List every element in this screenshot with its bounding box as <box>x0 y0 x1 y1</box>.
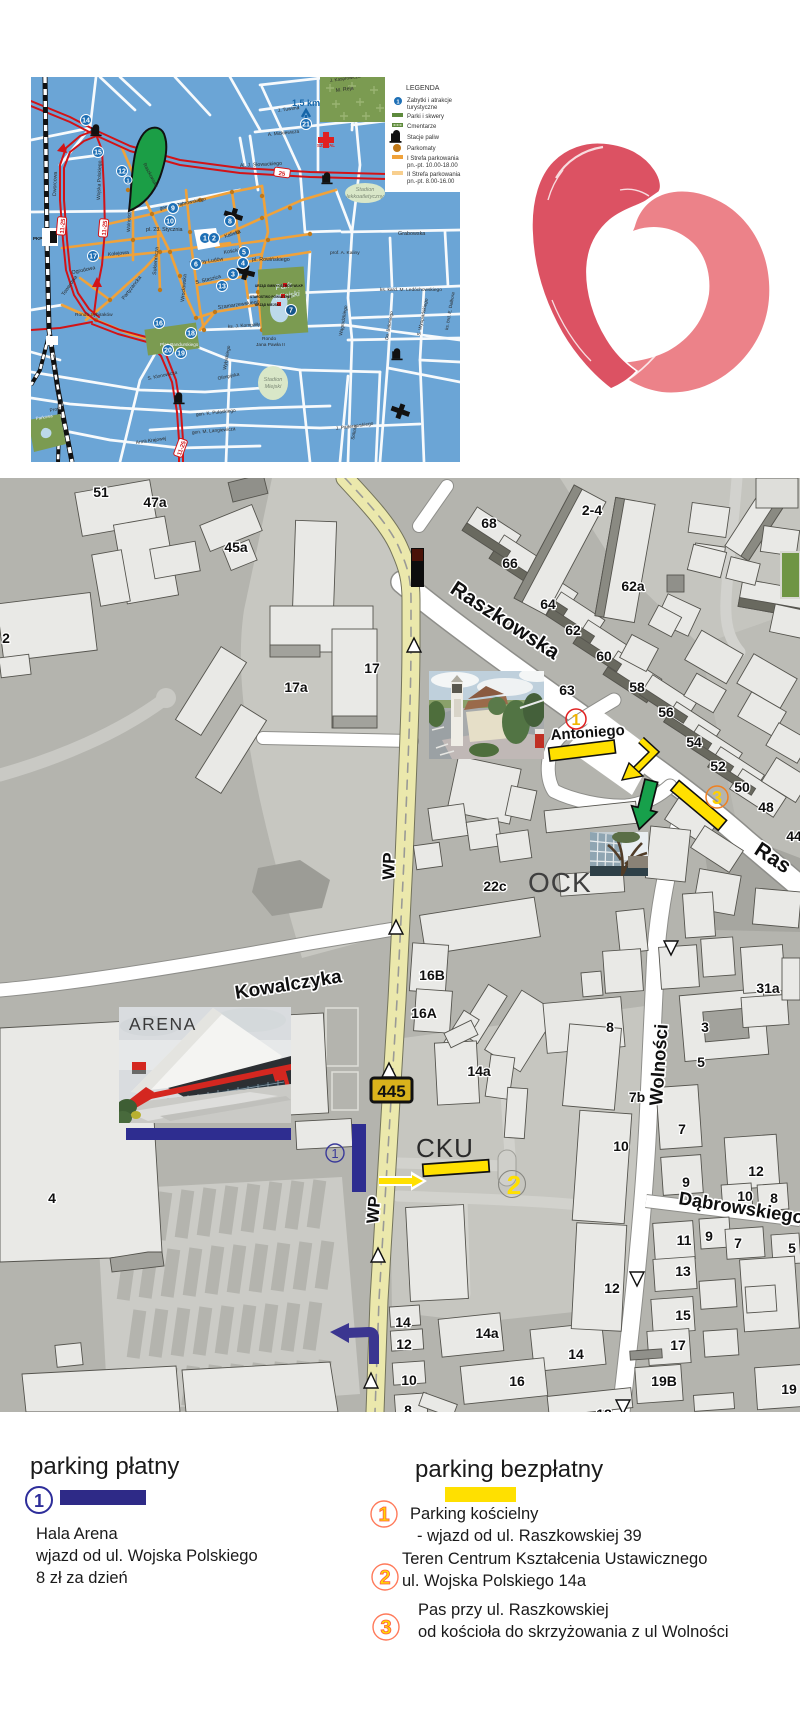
svg-text:11: 11 <box>677 1232 692 1248</box>
svg-text:10: 10 <box>613 1138 629 1154</box>
svg-text:8: 8 <box>770 1190 778 1206</box>
svg-text:18: 18 <box>596 1406 612 1412</box>
svg-text:Stadion: Stadion <box>264 377 283 383</box>
svg-text:52: 52 <box>710 758 726 774</box>
svg-text:od kościoła do skrzyżowania z: od kościoła do skrzyżowania z ul Wolnośc… <box>418 1623 729 1641</box>
svg-text:15: 15 <box>675 1307 691 1323</box>
svg-text:58: 58 <box>629 679 645 695</box>
svg-text:Pas przy ul. Raszkowskiej: Pas przy ul. Raszkowskiej <box>418 1601 609 1619</box>
svg-text:62: 62 <box>565 622 581 638</box>
svg-text:14a: 14a <box>467 1063 491 1079</box>
svg-text:2: 2 <box>507 1170 521 1200</box>
svg-text:1: 1 <box>203 236 207 243</box>
svg-text:1: 1 <box>572 712 581 729</box>
svg-text:II Strefa parkowania: II Strefa parkowania <box>407 172 461 178</box>
svg-text:16A: 16A <box>411 1005 437 1021</box>
svg-text:pl. Rowińskiego: pl. Rowińskiego <box>252 257 290 263</box>
svg-text:7: 7 <box>734 1235 742 1251</box>
svg-text:19: 19 <box>781 1381 797 1397</box>
svg-text:14: 14 <box>568 1346 584 1362</box>
svg-text:1: 1 <box>396 100 399 106</box>
svg-text:3: 3 <box>701 1019 709 1035</box>
svg-text:44: 44 <box>786 828 800 844</box>
svg-text:Dworcowa: Dworcowa <box>52 172 59 197</box>
svg-text:7: 7 <box>289 308 293 315</box>
svg-text:5: 5 <box>788 1240 796 1256</box>
svg-text:WP: WP <box>379 852 399 880</box>
svg-text:URZĄD GMINY OSTRÓW WLKP.: URZĄD GMINY OSTRÓW WLKP. <box>255 283 304 288</box>
svg-text:14: 14 <box>395 1314 411 1330</box>
svg-text:9: 9 <box>705 1228 713 1244</box>
svg-text:STAROSTWO POWIATOWE: STAROSTWO POWIATOWE <box>250 295 291 299</box>
svg-text:16B: 16B <box>419 967 445 983</box>
svg-text:Parking kościelny: Parking kościelny <box>410 1505 539 1523</box>
svg-text:3: 3 <box>231 272 235 279</box>
svg-text:Teren Centrum Kształcenia Usta: Teren Centrum Kształcenia Ustawicznego <box>402 1550 707 1568</box>
svg-text:16: 16 <box>509 1373 525 1389</box>
svg-text:5: 5 <box>697 1054 705 1070</box>
svg-text:prof. A. Kaliny: prof. A. Kaliny <box>330 250 360 256</box>
svg-text:Jana Pawła II: Jana Pawła II <box>256 342 285 348</box>
svg-text:Stacje paliw: Stacje paliw <box>407 135 440 141</box>
svg-text:12: 12 <box>396 1336 412 1352</box>
svg-text:17a: 17a <box>284 679 308 695</box>
svg-text:4: 4 <box>241 261 245 268</box>
svg-text:OCK: OCK <box>528 867 592 898</box>
svg-text:8 zł za dzień: 8 zł za dzień <box>36 1569 128 1587</box>
svg-text:51: 51 <box>93 484 109 500</box>
svg-text:Rondo: Rondo <box>262 336 276 342</box>
svg-text:Rondo Sybiraków: Rondo Sybiraków <box>75 312 113 318</box>
svg-text:9: 9 <box>171 206 175 213</box>
svg-text:Cmentarze: Cmentarze <box>407 124 437 130</box>
svg-text:50: 50 <box>734 779 750 795</box>
svg-text:1: 1 <box>331 1146 338 1161</box>
svg-text:pl. 23. Stycznia: pl. 23. Stycznia <box>146 227 183 233</box>
svg-text:64: 64 <box>540 596 556 612</box>
svg-text:63: 63 <box>559 682 575 698</box>
svg-text:2: 2 <box>212 236 216 243</box>
svg-text:9: 9 <box>682 1174 690 1190</box>
svg-text:21: 21 <box>302 122 310 129</box>
svg-text:60: 60 <box>596 648 612 664</box>
svg-text:17: 17 <box>670 1337 686 1353</box>
svg-text:15: 15 <box>94 150 102 157</box>
svg-text:8: 8 <box>404 1402 412 1412</box>
svg-text:10: 10 <box>737 1188 753 1204</box>
svg-text:14: 14 <box>82 118 90 125</box>
svg-text:54: 54 <box>686 734 702 750</box>
svg-text:2-4: 2-4 <box>582 502 602 518</box>
svg-text:ARENA: ARENA <box>129 1014 197 1034</box>
svg-text:12: 12 <box>118 169 126 176</box>
svg-text:ul. Wojska Polskiego 14a: ul. Wojska Polskiego 14a <box>402 1572 587 1590</box>
svg-text:4: 4 <box>48 1190 56 1206</box>
svg-text:Parkomaty: Parkomaty <box>407 146 436 152</box>
svg-text:Zabytki i atrakcje: Zabytki i atrakcje <box>407 98 453 104</box>
svg-text:Hala Arena: Hala Arena <box>36 1525 118 1543</box>
svg-text:445: 445 <box>377 1082 405 1101</box>
svg-text:Miejski: Miejski <box>265 384 283 390</box>
svg-text:CKU: CKU <box>416 1133 474 1163</box>
svg-text:WP: WP <box>363 1195 384 1224</box>
svg-text:20: 20 <box>164 348 172 355</box>
svg-text:Grabowska: Grabowska <box>398 231 425 237</box>
svg-text:LEGENDA: LEGENDA <box>406 85 440 92</box>
svg-text:8: 8 <box>606 1019 614 1035</box>
svg-text:pn.-pt. 8.00-16.00: pn.-pt. 8.00-16.00 <box>407 179 455 185</box>
svg-text:PKP: PKP <box>33 236 42 241</box>
svg-text:13: 13 <box>218 284 226 291</box>
svg-text:pn.-pt. 10.00-18.00: pn.-pt. 10.00-18.00 <box>407 163 458 169</box>
svg-text:Wolności: Wolności <box>126 212 133 232</box>
svg-text:1: 1 <box>126 179 129 185</box>
svg-text:Parki i skwery: Parki i skwery <box>407 114 444 120</box>
svg-text:lekkoatletyczny: lekkoatletyczny <box>346 194 385 200</box>
svg-text:ks. kard. M. Ledóchowskiego: ks. kard. M. Ledóchowskiego <box>380 287 442 293</box>
svg-text:10: 10 <box>401 1372 417 1388</box>
svg-text:3: 3 <box>712 788 722 808</box>
svg-text:13: 13 <box>675 1263 691 1279</box>
svg-text:14a: 14a <box>475 1325 499 1341</box>
svg-text:2: 2 <box>379 1567 390 1589</box>
svg-text:48: 48 <box>758 799 774 815</box>
svg-text:5: 5 <box>242 250 246 257</box>
svg-text:19B: 19B <box>651 1373 677 1389</box>
svg-text:17: 17 <box>364 660 380 676</box>
svg-text:31a: 31a <box>756 980 780 996</box>
svg-text:45a: 45a <box>224 539 248 555</box>
svg-text:18: 18 <box>187 331 195 338</box>
svg-text:3: 3 <box>380 1617 391 1639</box>
svg-text:22c: 22c <box>483 878 507 894</box>
svg-text:8: 8 <box>228 219 232 226</box>
svg-text:62a: 62a <box>621 578 645 594</box>
svg-text:56: 56 <box>658 704 674 720</box>
svg-text:47a: 47a <box>143 494 167 510</box>
svg-text:7: 7 <box>678 1121 686 1137</box>
svg-text:7b: 7b <box>629 1089 645 1105</box>
svg-text:wjazd od ul. Wojska Polskiego: wjazd od ul. Wojska Polskiego <box>35 1547 258 1565</box>
svg-text:- wjazd od ul. Raszkowskiej 39: - wjazd od ul. Raszkowskiej 39 <box>417 1527 642 1545</box>
svg-text:2: 2 <box>2 630 10 646</box>
svg-text:6: 6 <box>194 262 198 269</box>
svg-text:turystyczne: turystyczne <box>407 105 438 111</box>
svg-text:SZPITAL: SZPITAL <box>317 143 335 148</box>
svg-text:16: 16 <box>155 321 163 328</box>
svg-text:68: 68 <box>481 515 497 531</box>
svg-text:12: 12 <box>604 1280 620 1296</box>
svg-text:1: 1 <box>34 1491 44 1511</box>
svg-text:19: 19 <box>177 351 185 358</box>
svg-text:1: 1 <box>378 1504 389 1526</box>
svg-text:parking płatny: parking płatny <box>30 1453 179 1480</box>
svg-text:parking bezpłatny: parking bezpłatny <box>415 1456 603 1483</box>
svg-text:10: 10 <box>166 219 174 226</box>
svg-text:17: 17 <box>89 254 97 261</box>
svg-text:I Strefa parkowania: I Strefa parkowania <box>407 156 459 162</box>
svg-text:12: 12 <box>748 1163 764 1179</box>
svg-text:Stadion: Stadion <box>356 187 375 193</box>
svg-text:66: 66 <box>502 555 518 571</box>
